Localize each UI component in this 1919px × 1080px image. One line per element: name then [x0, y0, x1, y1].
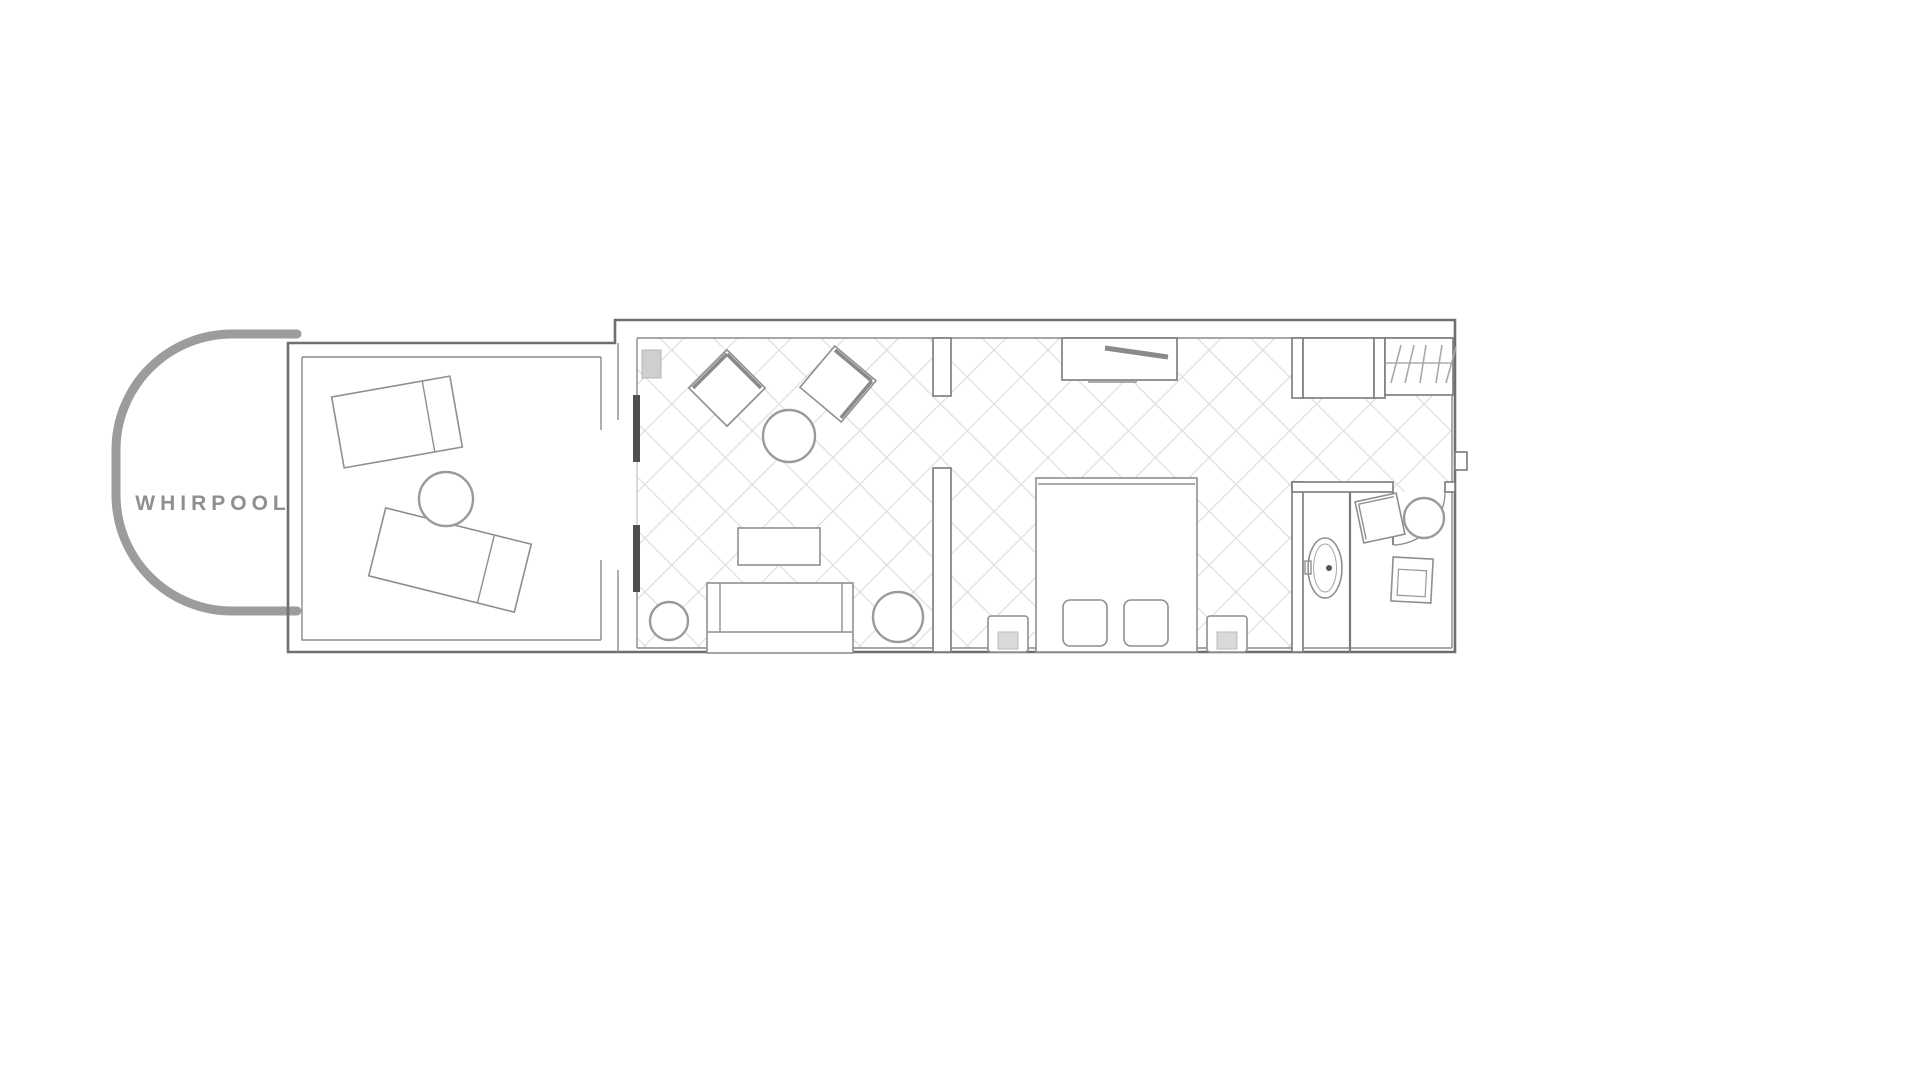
round-side-table	[1404, 498, 1444, 538]
bathroom-wall-top	[1292, 482, 1393, 492]
sliding-door-panel	[633, 395, 640, 462]
round-coffee-table	[763, 410, 815, 462]
whirlpool-label: WHIRPOOL	[135, 492, 291, 515]
wall-notch	[1455, 452, 1467, 470]
terrace-round-table	[419, 472, 473, 526]
sliding-door-panel	[633, 525, 640, 592]
side-chair	[1355, 493, 1405, 543]
nightstand	[988, 616, 1028, 652]
closet-wall	[1374, 338, 1385, 398]
wall-tv	[642, 350, 661, 378]
side-chair	[1391, 557, 1433, 603]
partition-wall-upper	[933, 338, 951, 396]
whirlpool-tub: WHIRPOOL	[116, 334, 297, 611]
sofa	[707, 583, 853, 653]
faucet-dot	[1326, 565, 1332, 571]
double-bed	[1036, 478, 1197, 652]
round-pouf	[873, 592, 923, 642]
bathroom-wall	[1292, 482, 1303, 652]
round-pouf	[650, 602, 688, 640]
desk-shelf-niche	[1062, 338, 1177, 382]
closet-wall	[1292, 338, 1303, 398]
sun-lounger	[332, 376, 463, 468]
floor-plan-drawing: WHIRPOOL	[0, 0, 1919, 1080]
closet	[1303, 338, 1374, 398]
partition-wall-lower	[933, 468, 951, 652]
pillow	[1124, 600, 1168, 646]
wardrobe-with-hangers	[1385, 338, 1456, 395]
door-jamb	[1445, 482, 1455, 492]
nightstand	[1207, 616, 1247, 652]
floor-plan-page: WHIRPOOL	[0, 0, 1919, 1080]
whirlpool-outline	[116, 334, 297, 611]
rectangular-coffee-table	[738, 528, 820, 565]
pillow	[1063, 600, 1107, 646]
